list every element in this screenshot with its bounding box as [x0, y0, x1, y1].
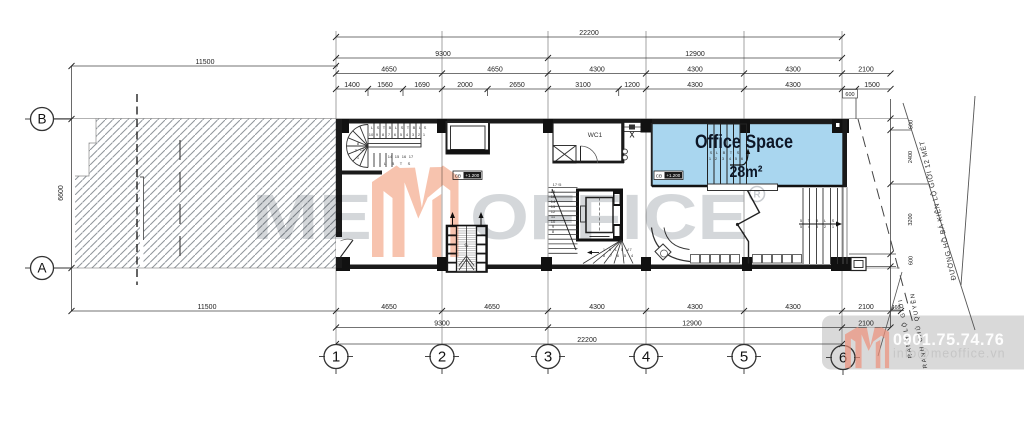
svg-text:B: B — [816, 218, 819, 223]
svg-text:4300: 4300 — [687, 304, 703, 311]
svg-text:+1.200: +1.200 — [465, 173, 479, 178]
svg-text:4300: 4300 — [785, 67, 801, 74]
svg-text:3: 3 — [544, 349, 552, 366]
svg-text:16: 16 — [402, 154, 407, 159]
svg-text:B: B — [413, 125, 416, 130]
svg-text:S: S — [832, 218, 835, 223]
svg-text:600: 600 — [845, 92, 854, 98]
svg-text:B: B — [37, 112, 46, 127]
svg-text:4650: 4650 — [381, 304, 397, 311]
svg-text:4300: 4300 — [785, 304, 801, 311]
svg-text:A: A — [37, 261, 46, 276]
svg-text:S: S — [424, 125, 427, 130]
svg-text:11500: 11500 — [198, 304, 217, 311]
svg-text:2000: 2000 — [457, 82, 473, 89]
svg-text:9300: 9300 — [435, 51, 451, 58]
svg-text:3200: 3200 — [908, 213, 914, 225]
svg-text:22200: 22200 — [579, 30, 599, 37]
svg-text:4650: 4650 — [381, 67, 397, 74]
svg-text:4300: 4300 — [589, 304, 605, 311]
svg-text:ME: ME — [252, 181, 372, 253]
svg-text:28m²: 28m² — [730, 164, 763, 181]
svg-text:1560: 1560 — [377, 82, 393, 89]
svg-text:12900: 12900 — [685, 51, 705, 58]
svg-text:4650: 4650 — [484, 304, 500, 311]
svg-text:600: 600 — [909, 256, 915, 265]
svg-text:14: 14 — [388, 154, 393, 159]
svg-text:22200: 22200 — [577, 337, 597, 344]
svg-text:1690: 1690 — [414, 82, 430, 89]
svg-text:1200: 1200 — [624, 82, 640, 89]
svg-text:OFFICE: OFFICE — [470, 181, 748, 253]
svg-text:3100: 3100 — [575, 82, 591, 89]
svg-text:2100: 2100 — [858, 304, 874, 311]
svg-text:CĐ: CĐ — [656, 173, 663, 178]
svg-text:4300: 4300 — [687, 67, 703, 74]
svg-text:S: S — [377, 125, 380, 130]
svg-text:B: B — [392, 161, 395, 166]
svg-text:17: 17 — [409, 154, 414, 159]
svg-text:4650: 4650 — [487, 67, 503, 74]
svg-text:4300: 4300 — [589, 67, 605, 74]
svg-text:5: 5 — [740, 349, 748, 366]
svg-text:S: S — [408, 161, 411, 166]
svg-text:2100: 2100 — [858, 67, 874, 74]
svg-text:2650: 2650 — [509, 82, 525, 89]
svg-text:4300: 4300 — [687, 82, 703, 89]
svg-text:10: 10 — [369, 132, 374, 137]
svg-text:2: 2 — [438, 349, 446, 366]
svg-text:1: 1 — [332, 349, 340, 366]
svg-text:11500: 11500 — [196, 59, 215, 66]
svg-text:4: 4 — [642, 349, 650, 366]
svg-text:1400: 1400 — [344, 82, 360, 89]
svg-text:12: 12 — [360, 147, 365, 152]
svg-text:9300: 9300 — [434, 321, 450, 328]
svg-text:2100: 2100 — [858, 321, 874, 328]
svg-text:1500: 1500 — [864, 82, 880, 89]
svg-text:R: R — [753, 190, 761, 201]
svg-text:WC1: WC1 — [588, 132, 603, 139]
svg-text:4300: 4300 — [785, 82, 801, 89]
svg-text:Office Space: Office Space — [695, 131, 793, 153]
svg-text:2400: 2400 — [908, 151, 914, 163]
svg-text:6600: 6600 — [58, 185, 65, 201]
svg-text:info@meoffice.vn: info@meoffice.vn — [893, 347, 1006, 361]
svg-text:12900: 12900 — [682, 321, 702, 328]
svg-text:S: S — [401, 125, 404, 130]
svg-text:15: 15 — [395, 154, 400, 159]
svg-text:+1.200: +1.200 — [666, 173, 680, 178]
svg-text:B: B — [389, 125, 392, 130]
